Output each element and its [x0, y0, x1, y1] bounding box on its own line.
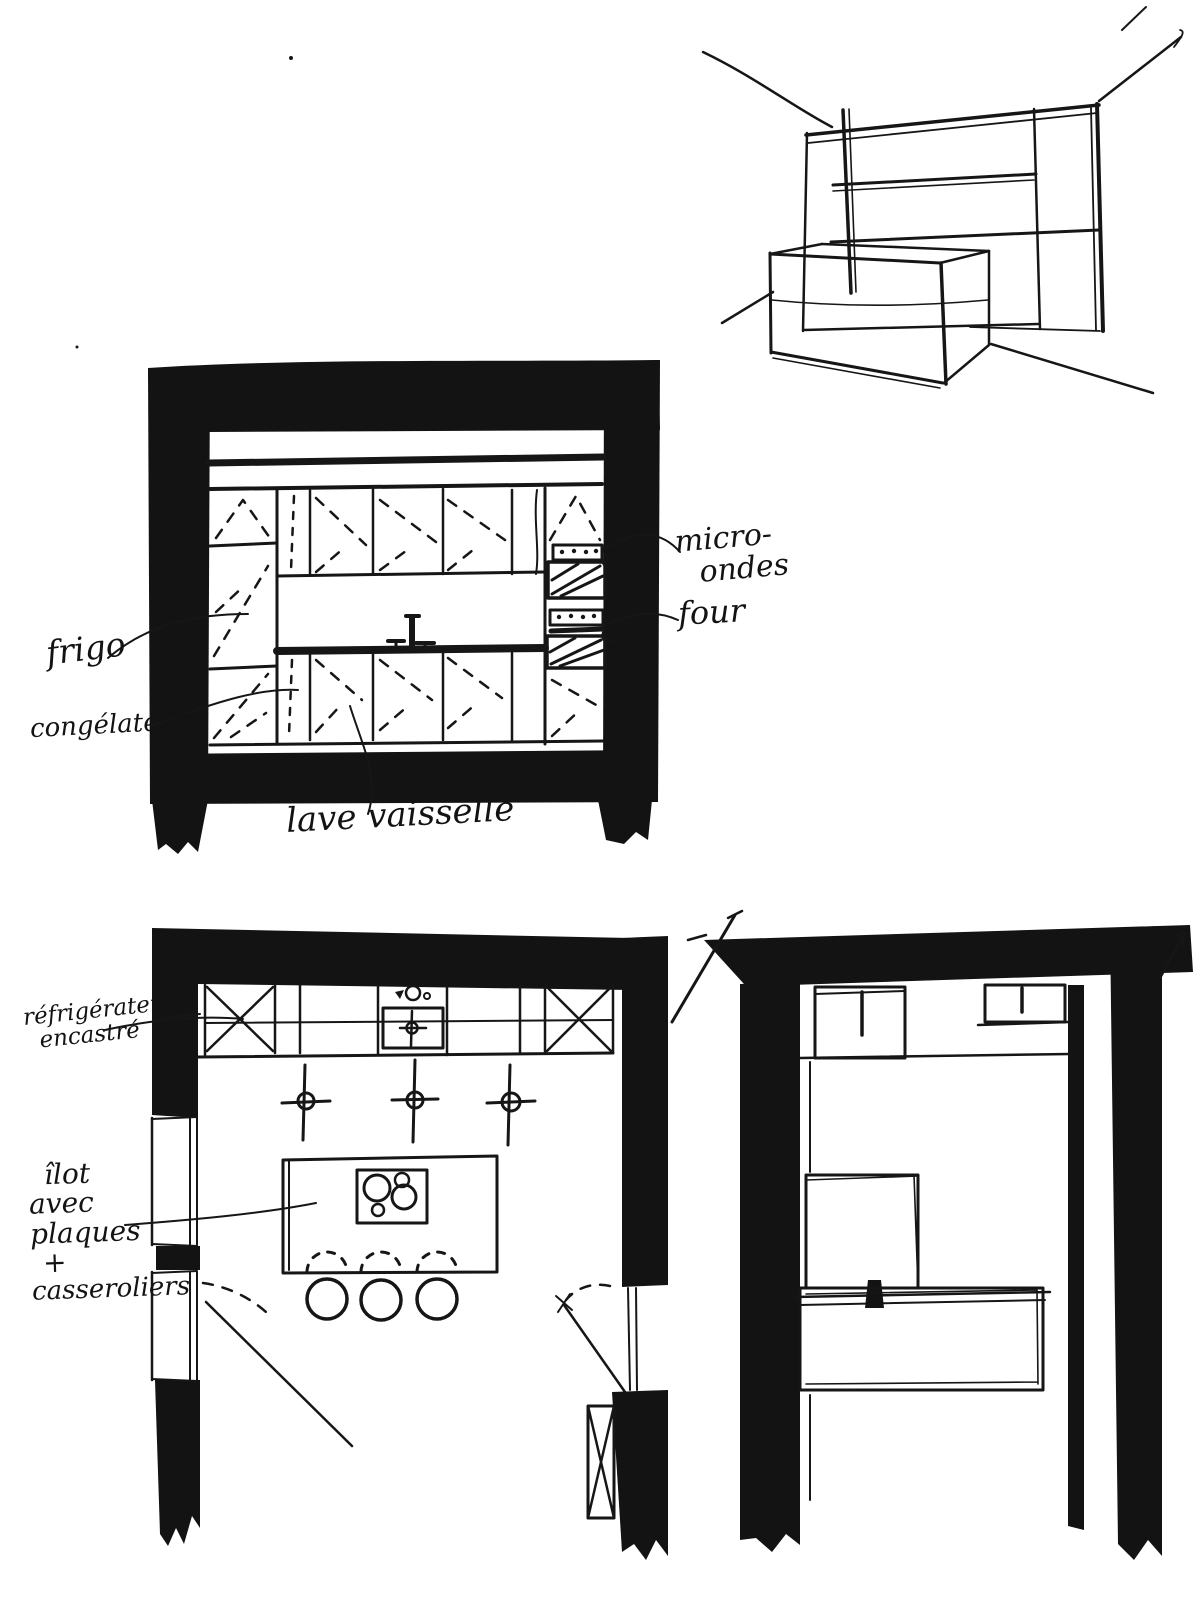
sketch-page: micro- ondes four frigo congélateur lave… — [0, 0, 1204, 1608]
label-micro-ondes: micro- ondes — [673, 517, 790, 589]
sketch-drawing — [0, 0, 1204, 1608]
plan-kitchen-sketch — [105, 928, 668, 1560]
sink-symbol — [383, 986, 443, 1048]
plan-adjacent-sketch — [672, 911, 1193, 1560]
label-ilot: îlot avec plaques + casseroliers — [28, 1155, 191, 1305]
label-micro-ondes-line2: ondes — [698, 549, 790, 588]
oven-symbol — [547, 610, 605, 668]
elevation-sketch — [108, 360, 680, 854]
microwave-symbol — [548, 545, 605, 598]
perspective-sketch — [76, 7, 1183, 393]
label-ilot-line5: casseroliers — [32, 1273, 191, 1306]
spot-symbols — [282, 1060, 535, 1145]
stool-symbols — [307, 1252, 457, 1320]
label-four: four — [677, 594, 746, 631]
